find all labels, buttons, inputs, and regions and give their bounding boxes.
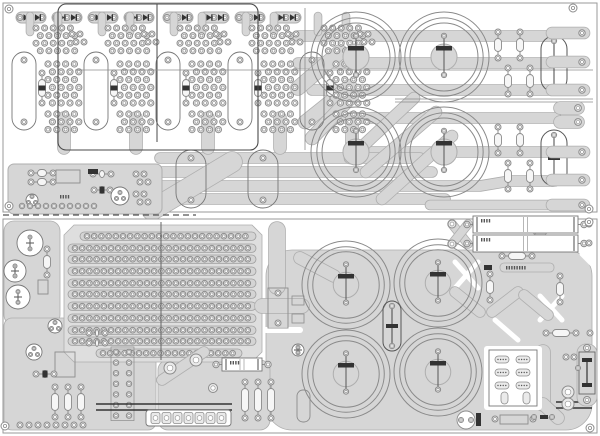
pad-hole (232, 329, 235, 332)
pad-hole (136, 235, 139, 238)
pad-hole (271, 113, 274, 116)
pad-hole (285, 42, 288, 45)
silkscreen-text-mark (60, 195, 61, 199)
slot-dot (524, 372, 525, 373)
pad-hole (174, 293, 177, 296)
slot-dot (526, 359, 527, 360)
pad-hole (146, 293, 149, 296)
silkscreen-text-mark (489, 238, 490, 242)
pad-hole (450, 222, 454, 226)
pad-hole (339, 102, 342, 105)
slot-dot (518, 359, 519, 360)
pad-hole (45, 205, 48, 208)
pad-hole (365, 120, 368, 123)
pad-hole (199, 128, 202, 131)
polarity-mark (540, 415, 548, 419)
pad-hole (225, 258, 228, 261)
pad-hole (345, 301, 347, 303)
pad-hole (28, 424, 31, 427)
pad-hole (19, 424, 22, 427)
slot-dot (505, 372, 506, 373)
pad-hole (137, 34, 140, 37)
slot-dot (497, 372, 498, 373)
pad-hole (519, 126, 522, 129)
silkscreen-text-mark (509, 266, 510, 270)
pad-hole (329, 72, 332, 75)
resistor-body (527, 75, 534, 88)
pad-hole (204, 27, 207, 30)
pad-hole (69, 86, 72, 89)
pad-hole (53, 373, 56, 376)
pad-hole (30, 172, 33, 175)
pad-hole (263, 94, 266, 97)
pad-hole (30, 354, 32, 356)
pad-hole (141, 102, 144, 105)
pad-hole (128, 393, 131, 396)
pad-hole (203, 340, 206, 343)
pad-hole (189, 329, 192, 332)
pad-hole (244, 235, 247, 238)
pad-hole (244, 381, 247, 384)
pad-hole (359, 33, 362, 36)
band (183, 86, 190, 91)
pad-hole (232, 305, 235, 308)
pad-hole (223, 33, 226, 36)
pad-hole (77, 70, 80, 73)
pad-hole (191, 63, 194, 66)
pad-hole (199, 63, 202, 66)
pad-hole (267, 70, 270, 73)
pad-hole (272, 49, 275, 52)
pad-hole (77, 86, 80, 89)
pad-hole (203, 258, 206, 261)
pad-hole (271, 78, 274, 81)
pad-hole (124, 317, 127, 320)
pad-hole (213, 120, 216, 123)
pad-hole (77, 102, 80, 105)
pad-hole (41, 72, 44, 75)
pad-hole (80, 416, 83, 419)
pad-hole (450, 242, 454, 246)
pad-hole (110, 293, 113, 296)
pad-hole (81, 329, 84, 332)
resistor-body (38, 170, 47, 177)
pad-hole (285, 16, 288, 19)
pad-hole (119, 63, 122, 66)
pad-hole (88, 247, 91, 250)
pad-hole (204, 120, 207, 123)
pad-hole (100, 235, 103, 238)
resistor-body (527, 170, 534, 183)
pad-hole (227, 41, 230, 44)
pad-hole (131, 293, 134, 296)
pad-hole (355, 130, 357, 132)
pad-hole (149, 102, 152, 105)
pad-hole (85, 205, 88, 208)
slot-dot (500, 385, 501, 386)
pad-hole (196, 329, 199, 332)
pad-hole (117, 317, 120, 320)
pad-hole (210, 317, 213, 320)
silkscreen-text-mark (489, 219, 490, 223)
pad-hole (217, 128, 220, 131)
pad-hole (136, 78, 139, 81)
pad-hole (576, 120, 579, 123)
pad-hole (128, 361, 131, 364)
pad-hole (132, 42, 135, 45)
pad-hole (174, 317, 177, 320)
pad-hole (285, 27, 288, 30)
pad-hole (280, 63, 283, 66)
pad-hole (136, 63, 139, 66)
pad-hole (329, 102, 332, 105)
pad-hole (107, 235, 110, 238)
pad-hole (81, 258, 84, 261)
pad-hole (217, 94, 220, 97)
pad-hole (64, 113, 67, 116)
pad-hole (88, 317, 91, 320)
pad-hole (201, 235, 204, 238)
pad-hole (339, 70, 342, 73)
pad-hole (289, 49, 292, 52)
pad-hole (210, 305, 213, 308)
pad-hole (460, 419, 462, 421)
pad-hole (189, 270, 192, 273)
pad-hole (51, 102, 54, 105)
pad-hole (74, 329, 77, 332)
pad-hole (348, 120, 351, 123)
pad-hole (81, 247, 84, 250)
pad-hole (138, 329, 141, 332)
pad-hole (189, 247, 192, 250)
silkscreen-text-mark (516, 266, 517, 270)
resistor-body (495, 134, 502, 147)
pad-hole (136, 113, 139, 116)
silkscreen-text-mark (68, 195, 69, 199)
pad-hole (221, 102, 224, 105)
pad-hole (582, 242, 585, 245)
pad-hole (225, 282, 228, 285)
pad-hole (580, 178, 583, 181)
pad-hole (352, 78, 355, 81)
pad-hole (60, 120, 63, 123)
pad-hole (208, 416, 213, 421)
pad-hole (21, 205, 24, 208)
pad-hole (267, 120, 270, 123)
pad-hole (221, 70, 224, 73)
pad-hole (255, 49, 258, 52)
pad-hole (29, 205, 32, 208)
polarity-plate (338, 274, 354, 279)
pad-hole (95, 270, 98, 273)
slot-dot (518, 372, 519, 373)
pad-hole (210, 270, 213, 273)
pad-hole (218, 282, 221, 285)
pad-hole (203, 293, 206, 296)
pad-hole (225, 340, 228, 343)
pad-hole (213, 42, 216, 45)
pad-hole (217, 63, 220, 66)
pad-hole (115, 372, 118, 375)
pad-hole (239, 247, 242, 250)
pad-hole (123, 70, 126, 73)
polarity-mark (88, 169, 98, 174)
pad-hole (218, 270, 221, 273)
pad-hole (219, 41, 222, 44)
pad-hole (119, 192, 121, 194)
pad-hole (239, 270, 242, 273)
slot-dot (503, 372, 504, 373)
pad-hole (86, 235, 89, 238)
pad-hole (110, 340, 113, 343)
pad-hole (195, 102, 198, 105)
pad-hole (577, 367, 579, 369)
pad-hole (195, 86, 198, 89)
pad-hole (181, 352, 184, 355)
pad-hole (280, 128, 283, 131)
pad-hole (259, 27, 262, 30)
pad-hole (79, 33, 82, 36)
pad-hole (95, 293, 98, 296)
polarity-plate (436, 141, 452, 146)
pad-hole (182, 329, 185, 332)
silkscreen-text-mark (65, 195, 66, 199)
pad-hole (213, 102, 216, 105)
pad-hole (138, 247, 141, 250)
pad-hole (74, 293, 77, 296)
pad-hole (114, 235, 117, 238)
pad-hole (143, 173, 146, 176)
pad-hole (60, 102, 63, 105)
pad-hole (149, 70, 152, 73)
pad-hole (365, 70, 368, 73)
pad-hole (145, 128, 148, 131)
pad-hole (507, 93, 510, 96)
pad-hole (138, 16, 141, 19)
pad-hole (75, 41, 78, 44)
pad-hole (204, 102, 207, 105)
pad-hole (189, 305, 192, 308)
polarity-mark (476, 413, 481, 426)
slot-dot (524, 385, 525, 386)
pad-hole (437, 350, 439, 352)
pad-hole (138, 293, 141, 296)
pad-hole (199, 78, 202, 81)
resistor-body (268, 389, 275, 412)
pad-hole (110, 317, 113, 320)
pad-hole (138, 340, 141, 343)
pad-hole (167, 59, 170, 62)
pad-hole (182, 282, 185, 285)
resistor-body (44, 256, 51, 269)
pad-hole (239, 282, 242, 285)
pad-hole (257, 417, 260, 420)
pad-hole (238, 16, 241, 19)
polarity-plate (348, 141, 364, 146)
pad-hole (182, 293, 185, 296)
pad-hole (141, 120, 144, 123)
pad-hole (14, 275, 16, 277)
pad-hole (335, 128, 338, 131)
resistor-body (242, 389, 249, 412)
pad-hole (115, 42, 118, 45)
polarity-plate (348, 46, 364, 51)
pad-hole (559, 275, 562, 278)
fiducial-mark (587, 220, 590, 223)
pad-hole (115, 361, 118, 364)
pad-hole (110, 329, 113, 332)
pad-hole (497, 126, 500, 129)
pad-hole (210, 247, 213, 250)
slot-dot (505, 385, 506, 386)
pad-hole (391, 345, 393, 347)
pad-hole (153, 305, 156, 308)
resistor-body (52, 394, 59, 411)
pad-hole (149, 120, 152, 123)
pad-hole (124, 247, 127, 250)
pad-hole (35, 42, 38, 45)
pad-hole (54, 386, 57, 389)
pad-hole (348, 27, 351, 30)
pad-hole (124, 305, 127, 308)
slot-pad (495, 382, 509, 389)
pad-hole (81, 317, 84, 320)
pad-hole (127, 78, 130, 81)
pad-hole (17, 301, 19, 303)
pad-hole (497, 57, 500, 60)
pad-hole (281, 34, 284, 37)
pad-hole (52, 172, 55, 175)
pad-hole (293, 86, 296, 89)
pad-hole (186, 416, 191, 421)
pad-hole (214, 363, 217, 366)
silkscreen-text-mark (519, 266, 520, 270)
pad-hole (117, 305, 120, 308)
pad-hole (167, 340, 170, 343)
slot-dot (497, 385, 498, 386)
pad-hole (117, 329, 120, 332)
pad-hole (119, 113, 122, 116)
pad-hole (507, 188, 510, 191)
pad-hole (82, 424, 85, 427)
pad-hole (123, 198, 125, 200)
slot-dot (497, 359, 498, 360)
pad-hole (115, 393, 118, 396)
pad-hole (348, 70, 351, 73)
band (100, 187, 105, 194)
pad-hole (110, 270, 113, 273)
pad-hole (271, 63, 274, 66)
pad-hole (195, 70, 198, 73)
pad-hole (107, 42, 110, 45)
pad-hole (239, 121, 242, 124)
pad-hole (81, 293, 84, 296)
pad-hole (357, 86, 360, 89)
pad-hole (131, 329, 134, 332)
pad-hole (54, 416, 57, 419)
pad-hole (167, 329, 170, 332)
pad-hole (124, 340, 127, 343)
pad-hole (73, 94, 76, 97)
pad-hole (174, 329, 177, 332)
pad-hole (179, 235, 182, 238)
pad-hole (263, 128, 266, 131)
pad-hole (111, 49, 114, 52)
pad-hole (146, 247, 149, 250)
pad-hole (297, 346, 299, 348)
slot-dot (526, 372, 527, 373)
pad-hole (203, 282, 206, 285)
pad-hole (127, 63, 130, 66)
pad-hole (81, 270, 84, 273)
pad-hole (222, 235, 225, 238)
pad-hole (196, 293, 199, 296)
pad-hole (230, 235, 233, 238)
resistor-body (517, 134, 524, 147)
fiducial-mark (587, 207, 590, 210)
pad-hole (167, 317, 170, 320)
pad-hole (189, 340, 192, 343)
pad-hole (335, 78, 338, 81)
pad-hole (80, 386, 83, 389)
pad-hole (138, 305, 141, 308)
pad-hole (208, 78, 211, 81)
pad-hole (289, 63, 292, 66)
pad-hole (51, 120, 54, 123)
pad-hole (60, 42, 63, 45)
pad-hole (102, 352, 105, 355)
slot-dot (503, 359, 504, 360)
pad-hole (533, 416, 535, 418)
pad-hole (74, 282, 77, 285)
pad-hole (280, 78, 283, 81)
pad-hole (553, 134, 555, 136)
pad-hole (443, 130, 445, 132)
pad-hole (361, 128, 364, 131)
pad-hole (47, 113, 50, 116)
pad-hole (166, 16, 169, 19)
pad-hole (267, 86, 270, 89)
pad-hole (580, 60, 583, 63)
fiducial-mark (571, 6, 574, 9)
pad-hole (280, 94, 283, 97)
pad-hole (167, 121, 170, 124)
pad-hole (297, 352, 299, 354)
pad-hole (183, 34, 186, 37)
pad-hole (117, 340, 120, 343)
pad-hole (204, 70, 207, 73)
pad-hole (299, 41, 302, 44)
pad-hole (244, 417, 247, 420)
pad-hole (203, 317, 206, 320)
fuse-plate (582, 383, 592, 387)
pad-hole (174, 340, 177, 343)
pad-hole (232, 258, 235, 261)
pad-hole (47, 34, 50, 37)
pad-hole (64, 94, 67, 97)
pad-hole (497, 31, 500, 34)
pad-hole (88, 293, 91, 296)
pad-hole (529, 188, 532, 191)
pad-hole (203, 305, 206, 308)
pad-hole (141, 42, 144, 45)
pad-hole (131, 247, 134, 250)
slot-pad (523, 392, 530, 404)
pad-hole (104, 332, 107, 335)
pad-hole (117, 270, 120, 273)
silkscreen-text-mark (481, 238, 482, 242)
pad-hole (46, 248, 49, 251)
